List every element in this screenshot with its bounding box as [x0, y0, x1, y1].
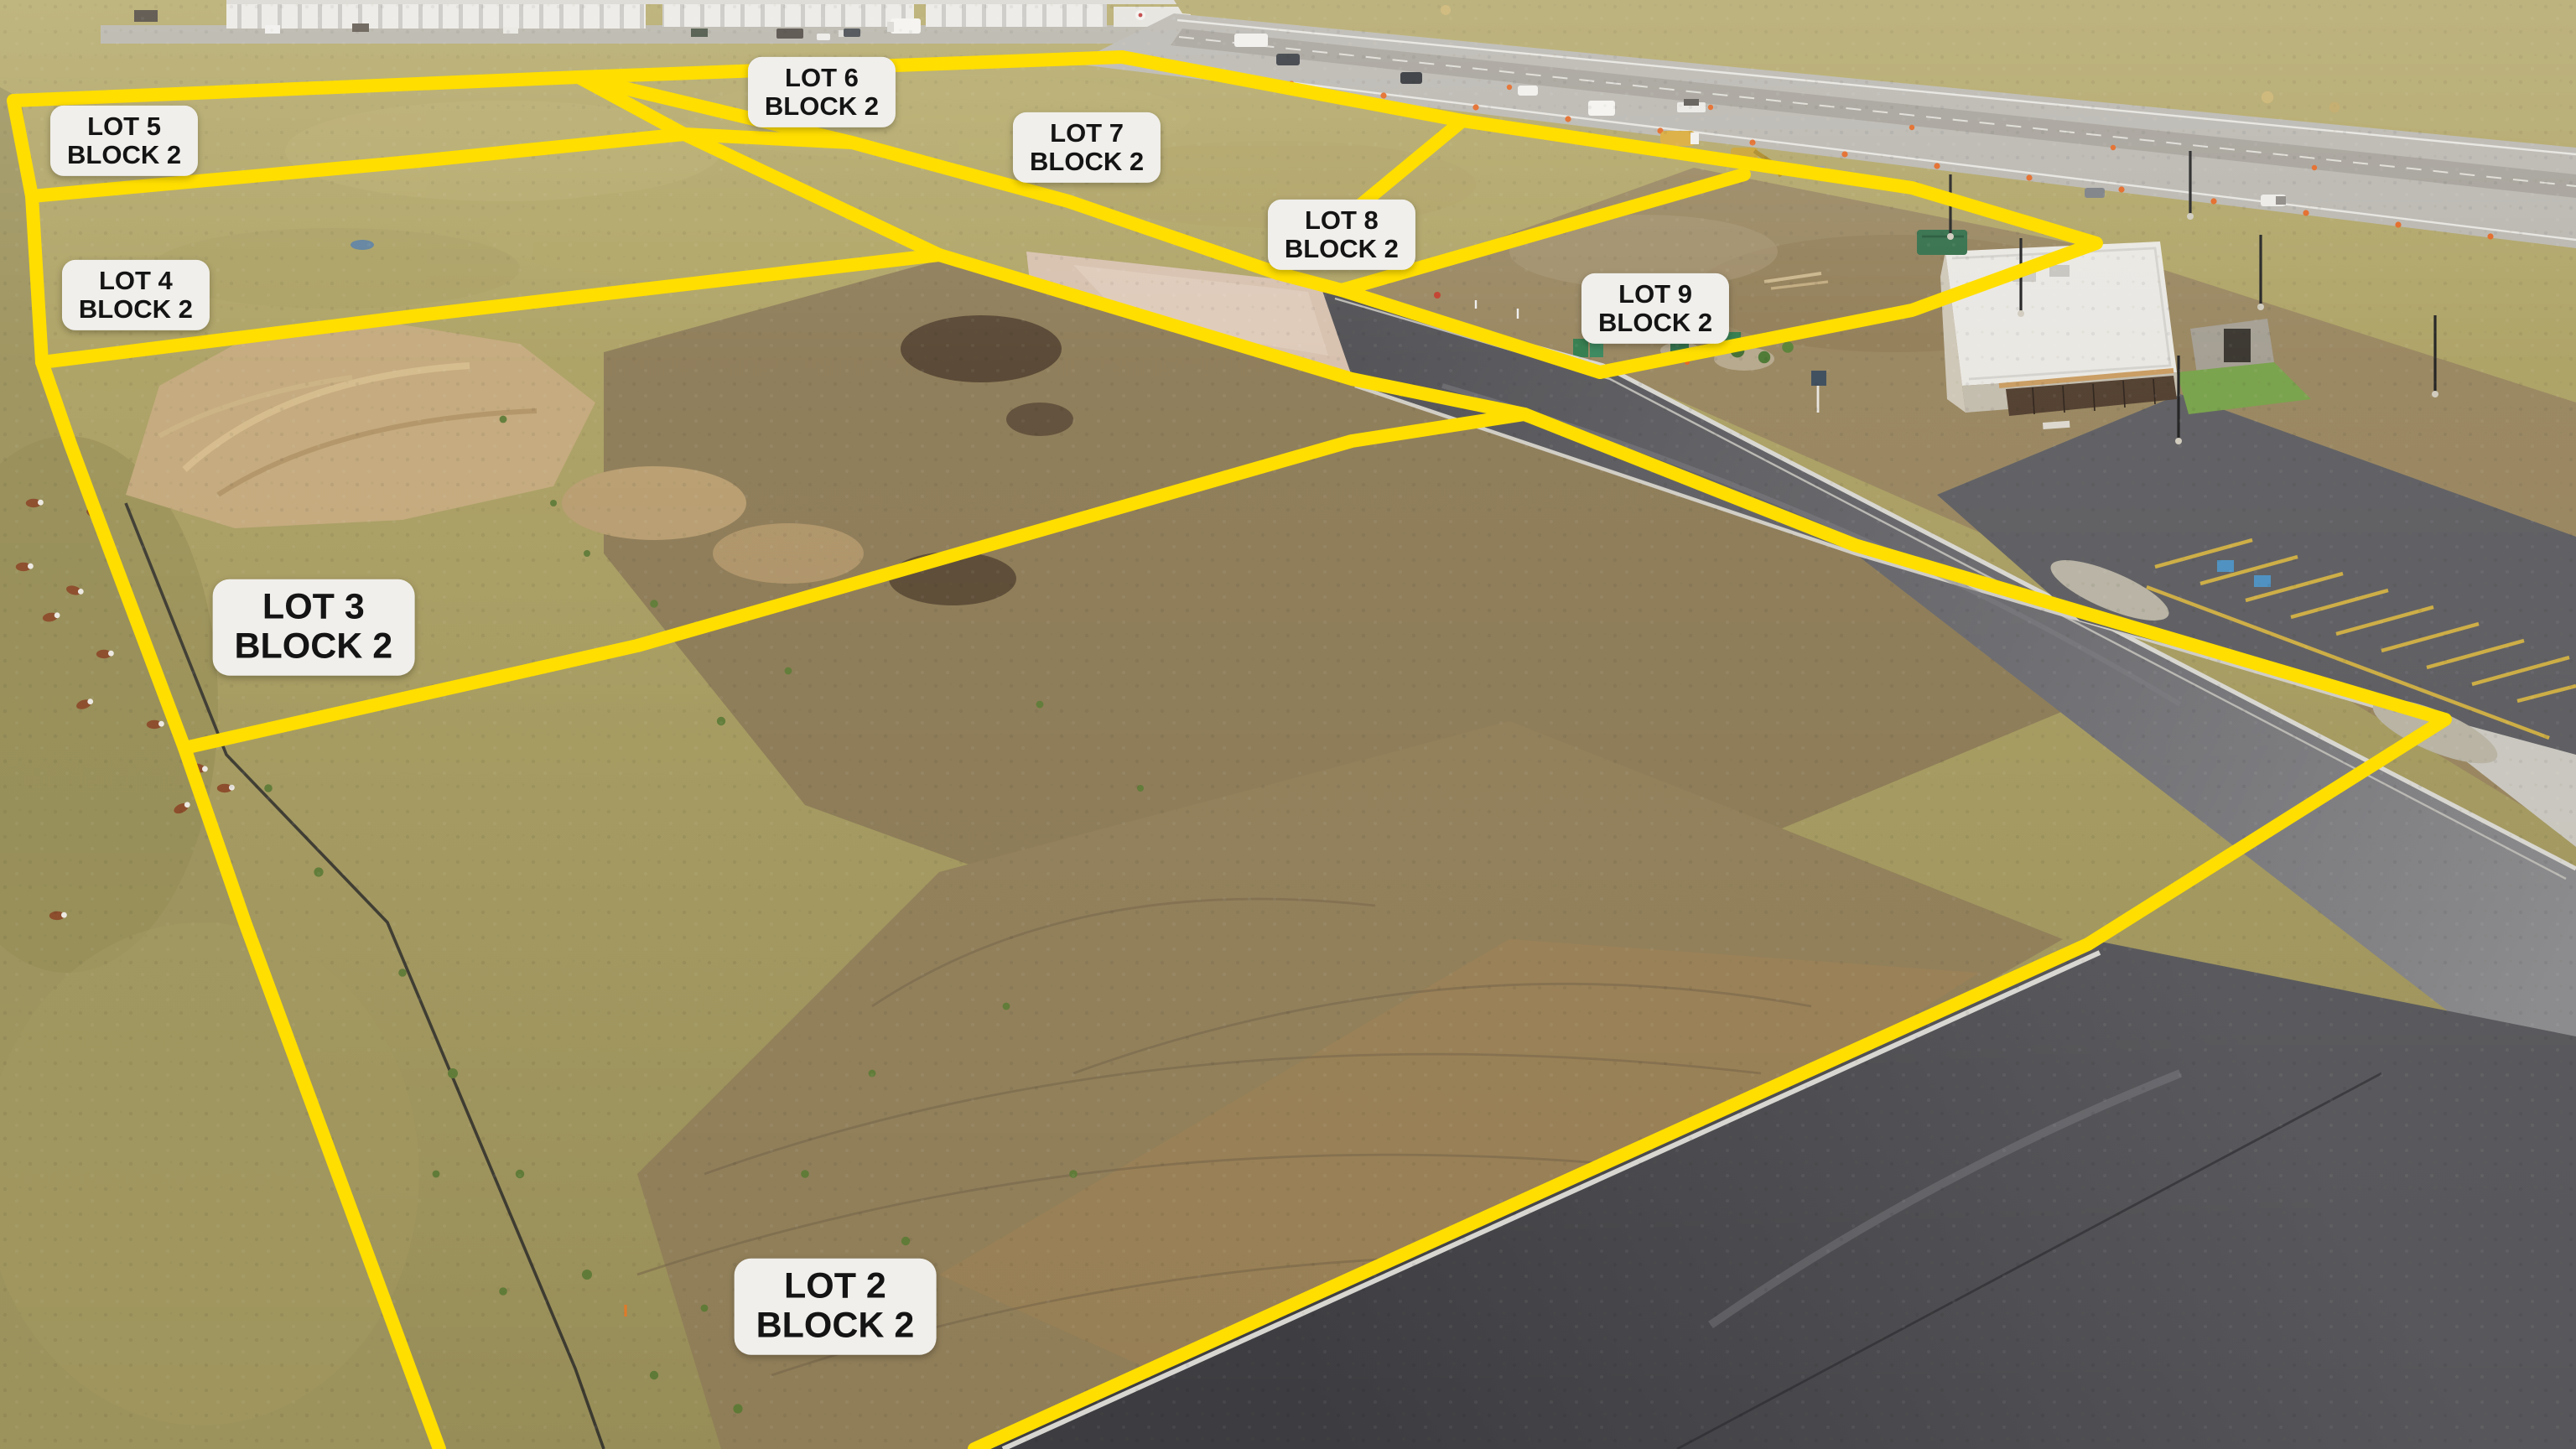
lot-label-lot-3: LOT 3 BLOCK 2: [212, 579, 414, 676]
lot-block: BLOCK 2: [765, 92, 879, 121]
lot-label-lot-2: LOT 2 BLOCK 2: [735, 1259, 937, 1355]
lot-block: BLOCK 2: [756, 1306, 915, 1346]
lot-label-lot-9: LOT 9 BLOCK 2: [1581, 273, 1729, 344]
lot-name: LOT 9: [1598, 280, 1712, 309]
lot-name: LOT 5: [67, 112, 181, 141]
lot-name: LOT 8: [1285, 206, 1399, 235]
lot-block: BLOCK 2: [234, 627, 392, 667]
lot-name: LOT 4: [79, 267, 193, 295]
lot-block: BLOCK 2: [67, 141, 181, 169]
lot-name: LOT 3: [234, 588, 392, 627]
lot-label-lot-8: LOT 8 BLOCK 2: [1268, 200, 1415, 270]
lot-label-lot-6: LOT 6 BLOCK 2: [748, 57, 896, 127]
aerial-lot-map: LOT 5 BLOCK 2 LOT 4 BLOCK 2 LOT 6 BLOCK …: [0, 0, 2576, 1449]
lot-block: BLOCK 2: [1598, 309, 1712, 337]
lot-block: BLOCK 2: [1285, 235, 1399, 263]
lot-block: BLOCK 2: [79, 295, 193, 324]
lot-label-lot-7: LOT 7 BLOCK 2: [1013, 112, 1161, 183]
lot-label-lot-5: LOT 5 BLOCK 2: [50, 106, 198, 176]
lot-name: LOT 6: [765, 64, 879, 92]
lot-name: LOT 7: [1030, 119, 1144, 148]
lot-block: BLOCK 2: [1030, 148, 1144, 176]
lot-label-lot-4: LOT 4 BLOCK 2: [62, 260, 210, 330]
lot-name: LOT 2: [756, 1267, 915, 1306]
